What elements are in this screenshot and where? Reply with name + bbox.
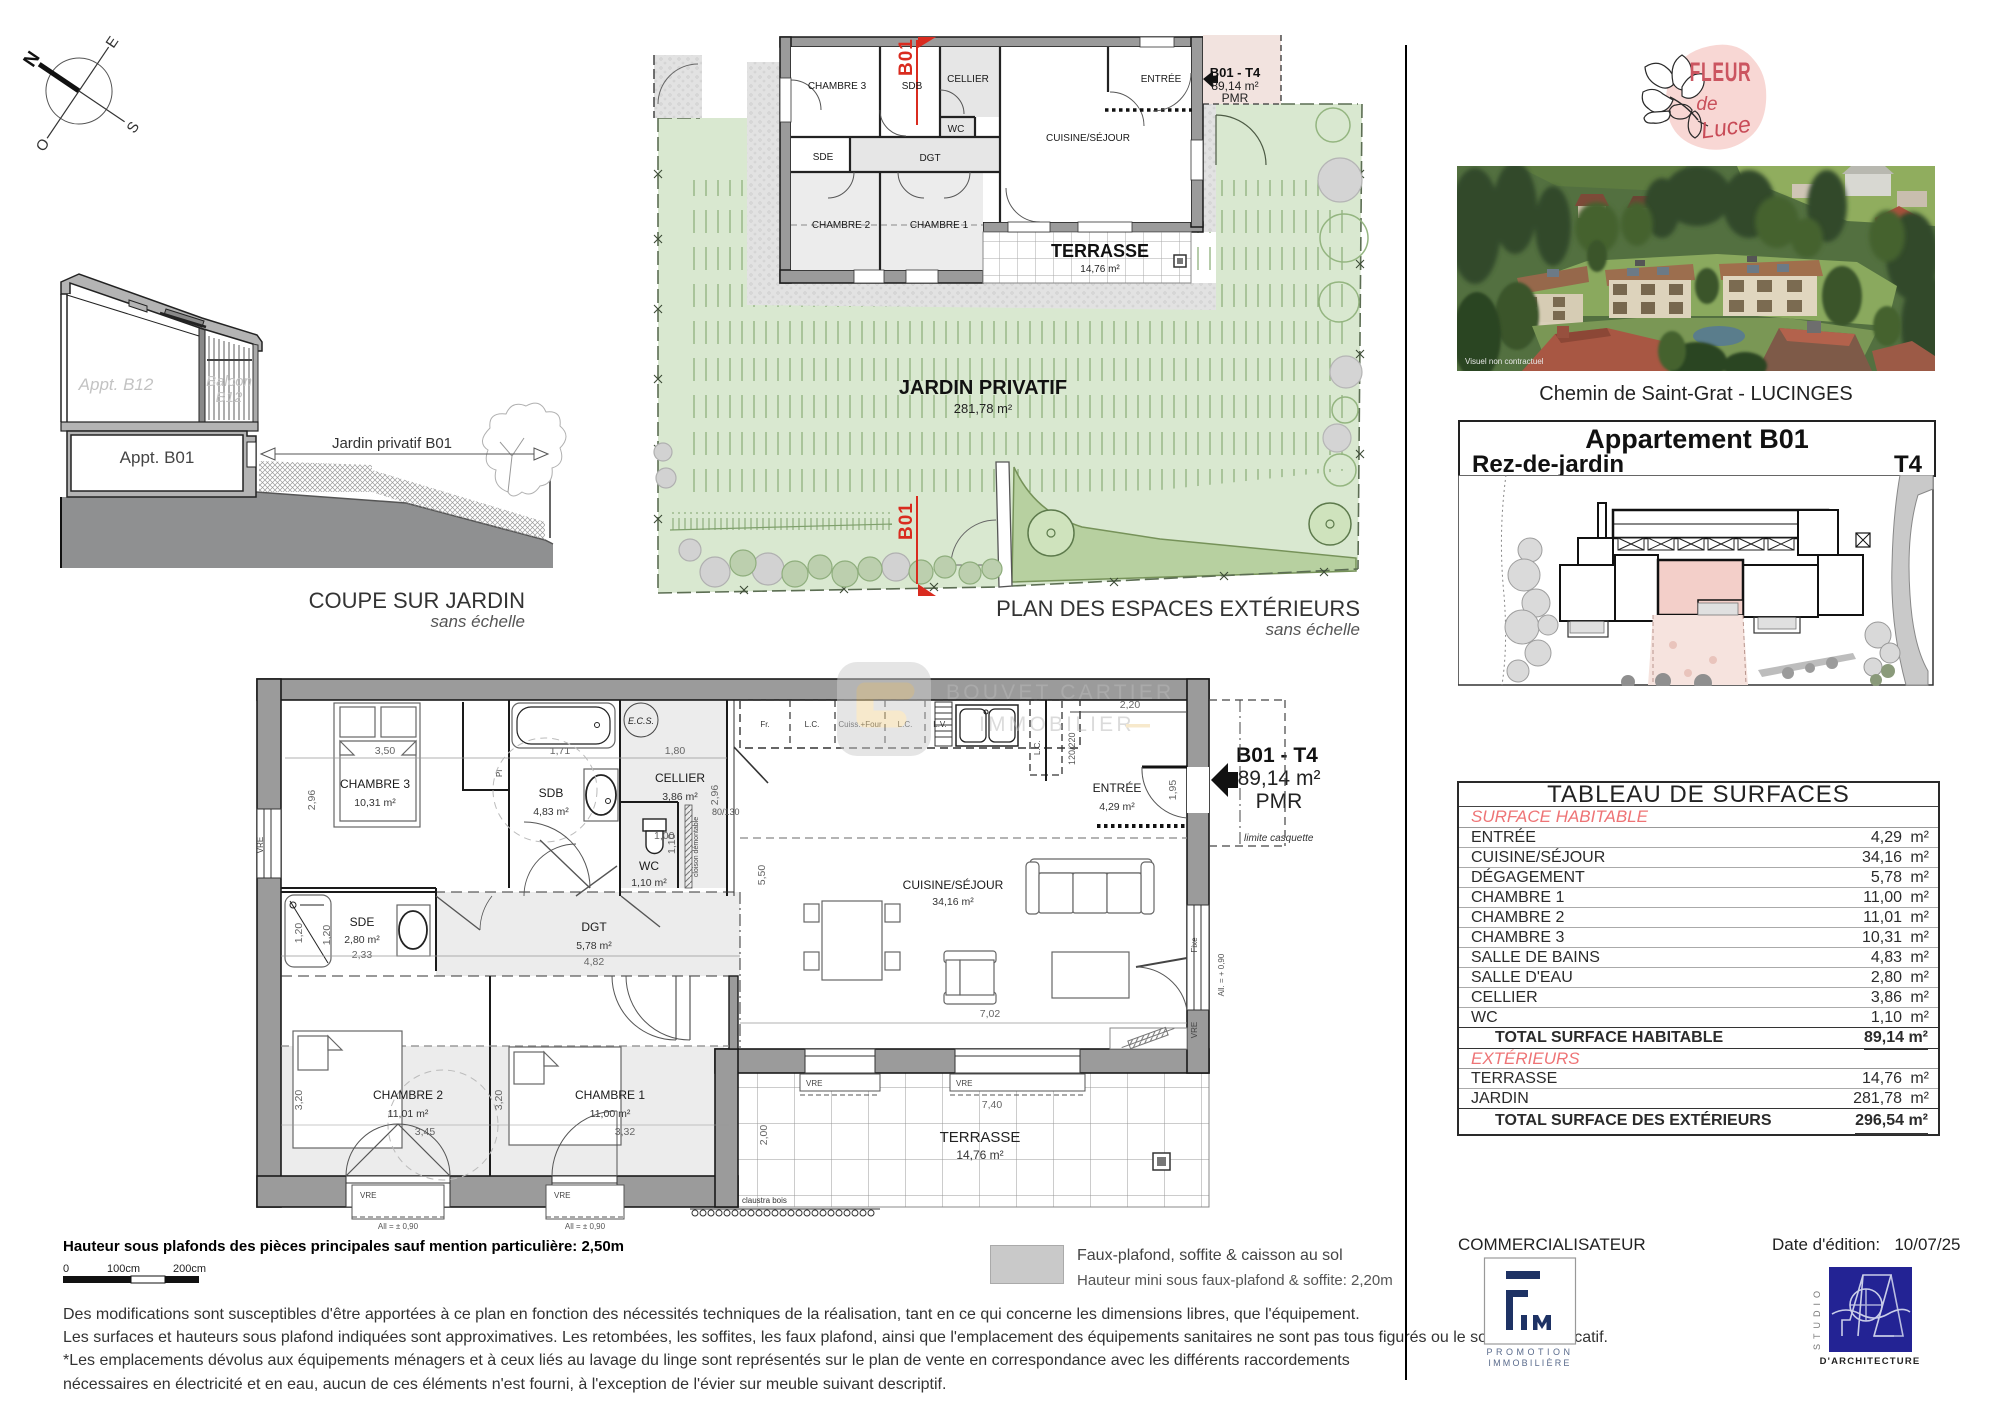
- svg-text:5,50: 5,50: [756, 865, 768, 886]
- svg-text:100cm: 100cm: [107, 1263, 140, 1275]
- svg-text:1,20: 1,20: [293, 923, 305, 944]
- svg-text:ENTRÉE: ENTRÉE: [1093, 780, 1142, 795]
- svg-text:14,76 m²: 14,76 m²: [956, 1148, 1003, 1162]
- svg-text:0: 0: [63, 1263, 69, 1275]
- svg-text:Appt. B01: Appt. B01: [120, 448, 195, 467]
- svg-text:TERRASSE: TERRASSE: [1051, 241, 1149, 261]
- svg-text:WC: WC: [639, 859, 659, 873]
- svg-text:DGT: DGT: [919, 153, 940, 164]
- svg-text:SDE: SDE: [813, 152, 834, 163]
- svg-text:Balcon: Balcon: [206, 373, 252, 390]
- svg-text:All = ± 0,90: All = ± 0,90: [565, 1222, 606, 1230]
- svg-text:1,20: 1,20: [321, 925, 333, 946]
- svg-text:CHAMBRE 3: CHAMBRE 3: [808, 81, 867, 92]
- svg-text:CHAMBRE 2: CHAMBRE 2: [812, 220, 871, 231]
- svg-text:D'ARCHITECTURE: D'ARCHITECTURE: [1820, 1356, 1921, 1367]
- svg-text:11,01 m²: 11,01 m²: [388, 1108, 429, 1120]
- svg-text:1,95: 1,95: [1167, 780, 1179, 801]
- svg-text:3,86 m²: 3,86 m²: [662, 791, 698, 803]
- svg-text:2,33: 2,33: [352, 949, 373, 961]
- svg-text:VRE: VRE: [806, 1079, 822, 1088]
- svg-text:4,83 m²: 4,83 m²: [533, 806, 569, 818]
- svg-text:STUDIO: STUDIO: [1812, 1286, 1822, 1350]
- svg-text:CHAMBRE 1: CHAMBRE 1: [575, 1088, 645, 1102]
- svg-text:PMR: PMR: [1222, 91, 1249, 105]
- svg-text:VRE: VRE: [256, 837, 265, 853]
- svg-text:VRE: VRE: [554, 1191, 570, 1200]
- svg-text:O: O: [33, 136, 54, 155]
- svg-text:CELLIER: CELLIER: [947, 74, 989, 85]
- svg-text:CUISINE/SÉJOUR: CUISINE/SÉJOUR: [1046, 131, 1130, 144]
- svg-text:2,00: 2,00: [758, 1125, 770, 1146]
- svg-text:SDB: SDB: [539, 786, 564, 800]
- svg-text:SDE: SDE: [350, 915, 375, 929]
- svg-text:IMMOBILIER: IMMOBILIER: [979, 713, 1135, 736]
- svg-text:Fixe: Fixe: [1190, 937, 1199, 953]
- svg-text:14,76 m²: 14,76 m²: [1080, 264, 1120, 275]
- svg-text:JARDIN PRIVATIF: JARDIN PRIVATIF: [899, 377, 1067, 399]
- svg-text:de: de: [1696, 94, 1717, 115]
- svg-text:CHAMBRE 3: CHAMBRE 3: [340, 777, 410, 791]
- svg-text:PMR: PMR: [1256, 790, 1303, 813]
- svg-text:WC: WC: [948, 124, 965, 135]
- svg-text:DGT: DGT: [581, 920, 607, 934]
- svg-text:VRE: VRE: [1190, 1022, 1199, 1038]
- svg-text:Jardin privatif B01: Jardin privatif B01: [332, 435, 452, 452]
- svg-text:1,10 m²: 1,10 m²: [631, 877, 667, 889]
- svg-text:3,50: 3,50: [375, 745, 396, 757]
- svg-text:B01 - T4: B01 - T4: [1236, 744, 1318, 767]
- svg-text:7,02: 7,02: [980, 1008, 1001, 1020]
- svg-text:34,16 m²: 34,16 m²: [932, 896, 974, 908]
- svg-text:B01: B01: [896, 502, 917, 540]
- svg-text:CHAMBRE 2: CHAMBRE 2: [373, 1088, 443, 1102]
- svg-text:4,29 m²: 4,29 m²: [1099, 801, 1135, 813]
- svg-text:L.C.: L.C.: [805, 720, 820, 729]
- svg-text:120/220: 120/220: [1067, 732, 1077, 765]
- svg-text:B01: B01: [896, 38, 917, 76]
- svg-text:S: S: [123, 119, 143, 137]
- svg-text:89,14 m²: 89,14 m²: [1238, 767, 1321, 790]
- svg-text:200cm: 200cm: [173, 1263, 206, 1275]
- svg-text:FLEUR: FLEUR: [1690, 56, 1752, 87]
- svg-text:VRE: VRE: [956, 1079, 972, 1088]
- svg-text:All = ± 0,90: All = ± 0,90: [378, 1222, 419, 1230]
- svg-text:limite casquette: limite casquette: [1244, 833, 1314, 844]
- svg-text:2,96: 2,96: [306, 790, 318, 811]
- svg-text:7,40: 7,40: [982, 1099, 1003, 1111]
- svg-text:All. = + 0,90: All. = + 0,90: [1217, 953, 1226, 996]
- svg-text:5,78 m²: 5,78 m²: [576, 940, 612, 952]
- svg-text:Visuel non contractuel: Visuel non contractuel: [1465, 357, 1544, 366]
- svg-text:VRE: VRE: [360, 1191, 376, 1200]
- svg-text:Appt. B12: Appt. B12: [78, 375, 154, 394]
- svg-text:TERRASSE: TERRASSE: [940, 1129, 1021, 1146]
- svg-text:cloison démontable: cloison démontable: [693, 817, 700, 877]
- svg-text:E.C.S.: E.C.S.: [628, 716, 654, 726]
- svg-text:1,10: 1,10: [666, 833, 678, 854]
- svg-text:CHAMBRE 1: CHAMBRE 1: [910, 220, 969, 231]
- svg-text:B12: B12: [216, 389, 243, 406]
- svg-text:PROMOTION: PROMOTION: [1487, 1347, 1574, 1357]
- svg-text:1,80: 1,80: [665, 745, 686, 757]
- svg-text:Fr.: Fr.: [760, 720, 769, 729]
- svg-text:281,78 m²: 281,78 m²: [954, 401, 1013, 416]
- svg-text:IMMOBILIÈRE: IMMOBILIÈRE: [1488, 1358, 1571, 1368]
- svg-text:2,96: 2,96: [709, 785, 721, 806]
- svg-text:E: E: [103, 33, 123, 51]
- svg-text:4,82: 4,82: [584, 956, 605, 968]
- svg-text:CELLIER: CELLIER: [655, 771, 705, 785]
- svg-text:3,20: 3,20: [493, 1090, 505, 1111]
- svg-text:10,31 m²: 10,31 m²: [354, 797, 396, 809]
- svg-text:BOUVET CARTIER: BOUVET CARTIER: [946, 681, 1174, 704]
- svg-text:SDB: SDB: [902, 81, 923, 92]
- svg-text:CUISINE/SÉJOUR: CUISINE/SÉJOUR: [903, 877, 1004, 892]
- svg-text:3,20: 3,20: [293, 1090, 305, 1111]
- svg-text:L.C.: L.C.: [1033, 740, 1042, 755]
- svg-text:B01 - T4: B01 - T4: [1210, 65, 1261, 80]
- svg-text:ENTRÉE: ENTRÉE: [1141, 72, 1182, 85]
- svg-text:2,80 m²: 2,80 m²: [344, 934, 380, 946]
- svg-text:80/130: 80/130: [712, 807, 740, 817]
- svg-text:claustra bois: claustra bois: [742, 1196, 787, 1205]
- svg-text:3,32: 3,32: [615, 1126, 636, 1138]
